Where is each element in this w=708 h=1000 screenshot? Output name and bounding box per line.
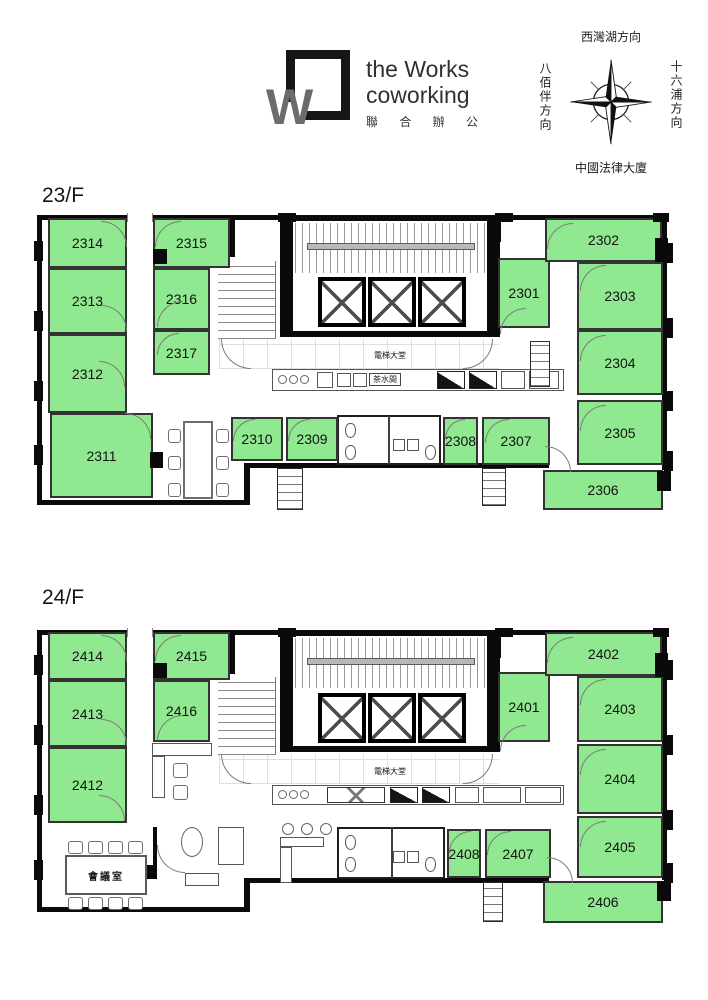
room-number: 2405 — [604, 839, 635, 855]
appliance — [327, 787, 385, 803]
structural-column — [278, 213, 296, 222]
structural-column — [153, 663, 167, 678]
structural-column — [664, 391, 673, 411]
compass-north-label: 西灣湖方向 — [535, 28, 687, 45]
compass: 西灣湖方向 十六浦方向 中國法律大廈 八佰伴方向 — [535, 28, 687, 176]
chair — [108, 841, 123, 854]
room-number: 2305 — [604, 425, 635, 441]
stairwell — [218, 677, 276, 755]
stair-landing — [307, 658, 475, 665]
fixture — [152, 743, 212, 756]
structural-column — [653, 628, 669, 637]
meeting-table — [183, 421, 213, 499]
stairwell — [218, 261, 276, 339]
structural-column — [34, 725, 43, 745]
toilet-fixture — [425, 445, 436, 460]
logo-subtitle: 聯 合 辦 公 — [366, 113, 487, 130]
meeting-room-label: 會議室 — [88, 868, 124, 883]
fixture — [185, 873, 219, 886]
pantry-label-23f: 茶水間 — [369, 373, 401, 386]
structural-column — [664, 451, 673, 471]
chair — [216, 429, 229, 443]
structural-column — [34, 241, 43, 261]
conference-table: 會議室 — [65, 855, 147, 895]
room-number: 2302 — [588, 232, 619, 248]
toilet-fixture — [345, 445, 356, 460]
room-number: 2311 — [86, 448, 116, 464]
structural-column — [34, 655, 43, 675]
appliance — [437, 371, 465, 389]
elevator-shaft — [368, 693, 416, 743]
elevator-shaft — [418, 277, 466, 327]
structural-column — [34, 795, 43, 815]
room-2306: 2306 — [543, 470, 663, 510]
wall-segment — [244, 463, 250, 505]
elevator-shaft — [368, 277, 416, 327]
partition-wall — [391, 828, 393, 878]
structural-column — [278, 628, 296, 637]
logo-text: the Works coworking 聯 合 辦 公 — [366, 56, 487, 130]
room-number: 2414 — [72, 648, 103, 664]
logo-title-line2: coworking — [366, 82, 487, 108]
entry-notch — [127, 213, 153, 222]
toilet-fixture — [345, 835, 356, 850]
structural-column — [664, 318, 673, 338]
structural-column — [34, 860, 43, 880]
fixture — [393, 439, 405, 451]
room-number: 2404 — [604, 771, 635, 787]
toilet-fixture — [425, 857, 436, 872]
structural-column — [655, 238, 668, 262]
chair — [173, 763, 188, 778]
room-number: 2406 — [587, 894, 618, 910]
stool — [301, 823, 313, 835]
floor-plan-24f: 電梯大堂 會議室 2401240224032404240524062407240… — [35, 615, 675, 927]
wall-segment — [244, 878, 250, 912]
structural-column — [150, 452, 163, 468]
compass-south-label: 中國法律大廈 — [535, 159, 687, 176]
compass-west-label: 八佰伴方向 — [537, 62, 554, 132]
room-number: 2303 — [604, 288, 635, 304]
door-arc — [545, 446, 571, 472]
fixture — [152, 756, 165, 798]
floor-plan-23f: 電梯大堂 茶水間 2301230223032304230523062307230… — [35, 213, 675, 515]
structural-column — [34, 445, 43, 465]
door-arc — [157, 845, 185, 873]
chair — [88, 841, 103, 854]
service-shaft — [277, 468, 303, 510]
door-arc — [547, 857, 573, 883]
elevator-shaft — [318, 693, 366, 743]
stool — [278, 375, 287, 384]
fixture — [525, 787, 561, 803]
fixture — [337, 373, 351, 387]
structural-column — [664, 863, 673, 883]
floor-label-23f: 23/F — [42, 184, 84, 208]
fixture — [407, 851, 419, 863]
chair — [108, 897, 123, 910]
chair — [68, 897, 83, 910]
structural-column — [34, 311, 43, 331]
room-number: 2313 — [72, 293, 103, 309]
stool — [300, 790, 309, 799]
room-number: 2314 — [72, 235, 103, 251]
chair — [168, 429, 181, 443]
service-shaft — [482, 468, 506, 506]
fixture — [393, 851, 405, 863]
chair — [168, 456, 181, 470]
floor-label-24f: 24/F — [42, 586, 84, 610]
structural-column — [664, 810, 673, 830]
structural-column — [147, 865, 157, 879]
entry-notch — [127, 628, 153, 637]
fixture — [317, 372, 333, 388]
elevator-shaft — [418, 693, 466, 743]
room-number: 2401 — [508, 699, 539, 715]
fixture — [353, 373, 367, 387]
chair — [168, 483, 181, 497]
structural-column — [657, 881, 671, 901]
lobby-label-23f: 電梯大堂 — [335, 350, 445, 361]
room-number: 2403 — [604, 701, 635, 717]
works-logo: W the Works coworking 聯 合 辦 公 — [272, 46, 512, 136]
chair — [128, 897, 143, 910]
compass-rose-icon — [567, 54, 655, 150]
appliance — [422, 787, 450, 803]
structural-column — [657, 471, 671, 491]
floor-plan-page: W the Works coworking 聯 合 辦 公 西灣湖方向 十六浦方… — [0, 0, 708, 1000]
lobby-label-24f: 電梯大堂 — [335, 766, 445, 777]
stool — [278, 790, 287, 799]
structural-column — [153, 249, 167, 264]
wall-segment — [280, 215, 293, 337]
toilet-fixture — [345, 423, 356, 438]
stool — [282, 823, 294, 835]
fixture — [501, 371, 525, 389]
wall-segment — [280, 630, 293, 752]
stool — [289, 790, 298, 799]
room-2406: 2406 — [543, 881, 663, 923]
fixture — [280, 847, 292, 883]
appliance — [469, 371, 497, 389]
chair — [216, 483, 229, 497]
structural-column — [489, 216, 501, 242]
stool — [300, 375, 309, 384]
structural-column — [653, 213, 669, 222]
stool — [289, 375, 298, 384]
room-number: 2301 — [508, 285, 539, 301]
logo-w-icon: W — [266, 86, 313, 129]
room-number: 2304 — [604, 355, 635, 371]
wall-segment — [230, 630, 235, 674]
logo-title-line1: the Works — [366, 56, 487, 82]
chair — [68, 841, 83, 854]
room-number: 2306 — [587, 482, 618, 498]
chair — [173, 785, 188, 800]
structural-column — [655, 653, 668, 677]
fixture — [280, 837, 324, 847]
fixture — [483, 787, 521, 803]
partition-wall — [388, 416, 390, 464]
wall-segment — [230, 215, 235, 257]
structural-column — [34, 381, 43, 401]
fixture — [407, 439, 419, 451]
chair — [128, 841, 143, 854]
chair — [88, 897, 103, 910]
structural-column — [489, 632, 501, 658]
appliance — [390, 787, 418, 803]
wall-segment — [37, 500, 249, 505]
service-shaft — [483, 882, 503, 922]
fixture — [218, 827, 244, 865]
stair-landing — [307, 243, 475, 250]
room-number: 2402 — [588, 646, 619, 662]
room-number: 2412 — [72, 777, 103, 793]
structural-column — [664, 735, 673, 755]
fixture — [455, 787, 479, 803]
elevator-shaft — [318, 277, 366, 327]
toilet-fixture — [345, 857, 356, 872]
room-number: 2413 — [72, 706, 103, 722]
compass-east-label: 十六浦方向 — [668, 60, 685, 130]
chair — [216, 456, 229, 470]
stool — [320, 823, 332, 835]
service-shaft — [530, 341, 550, 387]
